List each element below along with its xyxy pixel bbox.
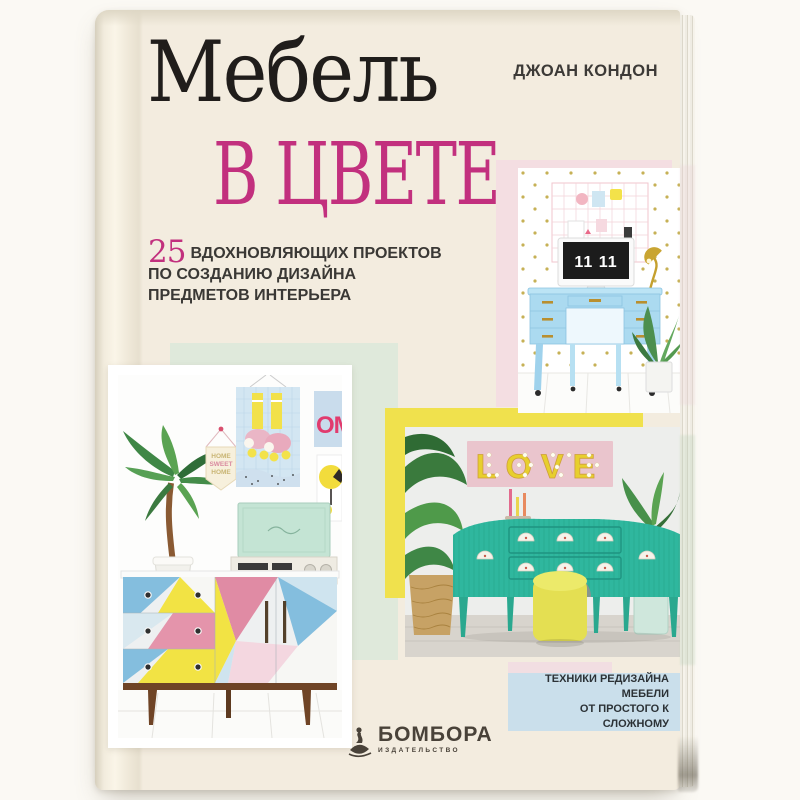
publisher-logo: БОМБОРА ИЗДАТЕЛЬСТВО bbox=[348, 724, 493, 760]
subtitle-line1-text: ВДОХНОВЛЯЮЩИХ ПРОЕКТОВ bbox=[190, 245, 441, 262]
love-scene: LOVE bbox=[405, 427, 680, 657]
subtitle-line-3: ПРЕДМЕТОВ ИНТЕРЬЕРА bbox=[148, 285, 442, 306]
book-title-accent: в цвете bbox=[213, 132, 499, 218]
photo-geometric-sideboard: HOME SWEET HOME bbox=[108, 365, 352, 748]
om-poster: OM bbox=[314, 391, 342, 447]
subtitle-line-1: 25ВДОХНОВЛЯЮЩИХ ПРОЕКТОВ bbox=[148, 242, 442, 264]
yellow-pouf bbox=[533, 571, 587, 647]
photo-love-sideboard: LOVE bbox=[405, 427, 680, 657]
book: 11 11 bbox=[95, 10, 701, 792]
publisher-logo-text: БОМБОРА ИЗДАТЕЛЬСТВО bbox=[378, 724, 493, 754]
geometric-sideboard bbox=[118, 571, 342, 738]
author-name: ДЖОАН КОНДОН bbox=[513, 62, 658, 81]
desk-scene: 11 11 bbox=[518, 168, 680, 413]
badge-line-2: ОТ ПРОСТОГО К СЛОЖНОМУ bbox=[519, 702, 669, 732]
love-sign-text: LOVE bbox=[476, 448, 605, 486]
page-edge-tint-green bbox=[680, 435, 695, 665]
book-title-main: Мебель bbox=[147, 28, 438, 116]
pennant-line3: HOME bbox=[211, 469, 231, 476]
gallery-scene: HOME SWEET HOME bbox=[118, 375, 342, 738]
publisher-tagline: ИЗДАТЕЛЬСТВО bbox=[378, 747, 493, 754]
book-product-photo: 11 11 bbox=[0, 0, 800, 800]
publisher-logo-icon bbox=[348, 724, 372, 760]
photo-desk-workspace: 11 11 bbox=[518, 168, 680, 413]
pennant-line1: HOME bbox=[211, 453, 231, 460]
subtitle-line-2: ПО СОЗДАНИЮ ДИЗАЙНА bbox=[148, 264, 442, 285]
book-corner-shadow bbox=[678, 736, 698, 792]
book-subtitle: 25ВДОХНОВЛЯЮЩИХ ПРОЕКТОВ ПО СОЗДАНИЮ ДИЗ… bbox=[148, 242, 442, 306]
om-poster-text: OM bbox=[316, 412, 342, 439]
roller-skates-poster bbox=[236, 375, 300, 487]
book-page-edges bbox=[680, 15, 695, 787]
publisher-name: БОМБОРА bbox=[378, 724, 493, 746]
love-marquee-sign: LOVE bbox=[467, 441, 613, 487]
clock-time: 11 11 bbox=[574, 254, 617, 271]
pennant-line2: SWEET bbox=[209, 461, 232, 468]
book-front-cover: 11 11 bbox=[95, 10, 680, 790]
tagline-badge: ТЕХНИКИ РЕДИЗАЙНА МЕБЕЛИ ОТ ПРОСТОГО К С… bbox=[508, 673, 680, 731]
badge-line-1: ТЕХНИКИ РЕДИЗАЙНА МЕБЕЛИ bbox=[519, 672, 669, 702]
page-edge-tint-pink bbox=[680, 165, 695, 405]
